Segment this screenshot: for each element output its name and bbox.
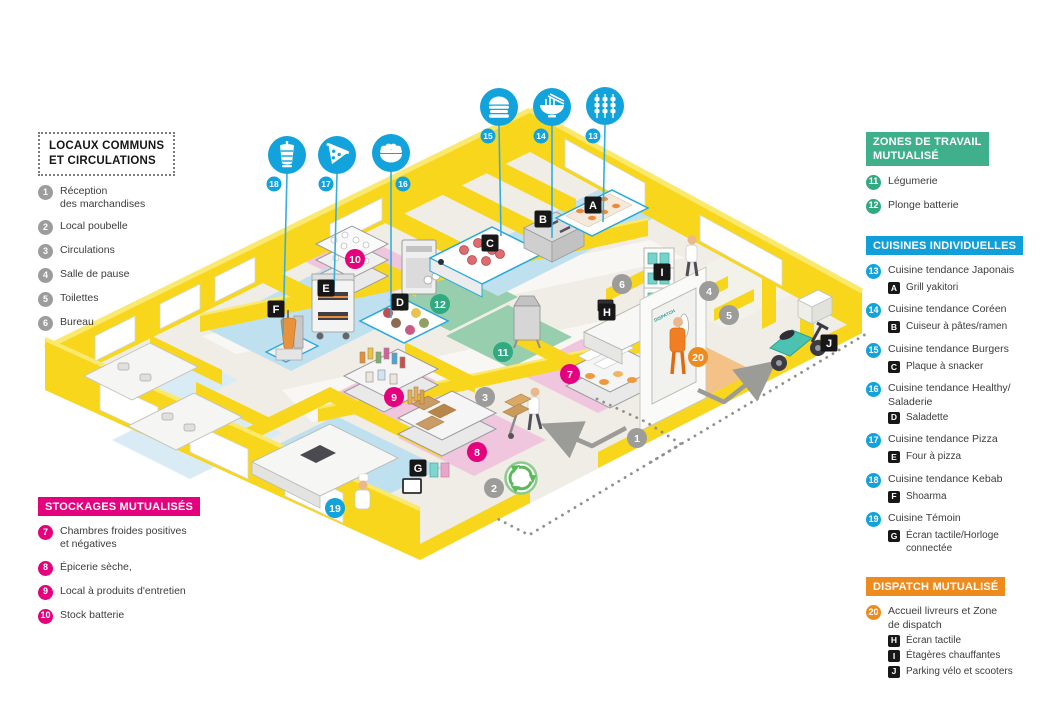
item-label: Chambres froides positives et négatives (60, 525, 187, 551)
item-label: Cuisine tendance Pizza (888, 433, 998, 446)
legend-item-entretien: 9 Local à produits d'entretien (38, 585, 223, 600)
icon-number: 14 (536, 131, 546, 141)
item-label: Local poubelle (60, 220, 128, 233)
legend-right-column: ZONES DE TRAVAIL MUTUALISÉ 11 Légumerie … (866, 132, 1040, 678)
badge-J: J (821, 335, 838, 352)
badge-2: 2 (484, 478, 504, 498)
legend-sub-ecran-horloge: G Écran tactile/Horloge connectée (888, 530, 1040, 555)
legend-sub-saladette: D Saladette (888, 412, 1040, 425)
item-number-badge: 15 (866, 343, 881, 358)
badge-C: C (482, 235, 499, 252)
sub-label: Parking vélo et scooters (906, 666, 1013, 679)
item-label: Toilettes (60, 292, 99, 305)
svg-text:7: 7 (567, 369, 573, 381)
item-letter-badge: G (888, 530, 900, 542)
svg-text:10: 10 (349, 254, 361, 266)
item-label: Plonge batterie (888, 199, 959, 212)
legend-item-epicerie: 8 Épicerie sèche, (38, 561, 223, 576)
legend-item-chambres-froides: 7 Chambres froides positives et négative… (38, 525, 223, 551)
sub-label: Étagères chauffantes (906, 650, 1000, 663)
badge-12: 12 (430, 294, 450, 314)
item-letter-badge: A (888, 282, 900, 294)
recycle-icon (506, 463, 538, 494)
item-number-badge: 6 (38, 316, 53, 331)
item-letter-badge: H (888, 635, 900, 647)
svg-text:19: 19 (329, 503, 341, 515)
legend-item-poubelle: 2 Local poubelle (38, 220, 216, 235)
legend-item-healthy: 16 Cuisine tendance Healthy/ Saladerie (866, 382, 1040, 408)
item-label: Local à produits d'entretien (60, 585, 186, 598)
item-label: Légumerie (888, 175, 938, 188)
item-number-badge: 12 (866, 199, 881, 214)
item-label: Bureau (60, 316, 94, 329)
icon-number: 17 (321, 179, 331, 189)
legend-item-burgers: 15 Cuisine tendance Burgers (866, 343, 1040, 358)
item-letter-badge: C (888, 361, 900, 373)
icon-number: 16 (398, 179, 408, 189)
item-number-badge: 13 (866, 264, 881, 279)
sub-label: Écran tactile (906, 635, 961, 648)
item-number-badge: 7 (38, 525, 53, 540)
sub-label: Cuiseur à pâtes/ramen (906, 321, 1007, 334)
legend-shared-title: ZONES DE TRAVAIL MUTUALISÉ (866, 132, 989, 166)
legend-sub-four: E Four à pizza (888, 451, 1040, 464)
item-label: Cuisine tendance Coréen (888, 303, 1007, 316)
badge-5: 5 (719, 305, 739, 325)
badge-10: 10 (345, 249, 365, 269)
item-label: Cuisine tendance Japonais (888, 264, 1014, 277)
legend-item-circulations: 3 Circulations (38, 244, 216, 259)
sub-label: Four à pizza (906, 451, 961, 464)
legend-kitchens-title: CUISINES INDIVIDUELLES (866, 236, 1023, 255)
legend-item-plonge: 12 Plonge batterie (866, 199, 1040, 214)
svg-text:5: 5 (726, 310, 732, 322)
svg-text:8: 8 (474, 447, 480, 459)
svg-text:H: H (603, 307, 611, 319)
badge-20: 20 (688, 347, 708, 367)
badge-1: 1 (627, 428, 647, 448)
sub-label: Écran tactile/Horloge connectée (906, 530, 999, 555)
svg-text:B: B (539, 214, 547, 226)
legend-item-legumerie: 11 Légumerie (866, 175, 1040, 190)
item-number-badge: 5 (38, 292, 53, 307)
legend-item-reception: 1 Réception des marchandises (38, 185, 216, 211)
badge-3: 3 (475, 387, 495, 407)
badge-G: G (410, 460, 427, 477)
legend-item-toilettes: 5 Toilettes (38, 292, 216, 307)
svg-text:J: J (826, 338, 832, 350)
svg-text:11: 11 (497, 347, 508, 359)
legend-item-pause: 4 Salle de pause (38, 268, 216, 283)
svg-text:6: 6 (619, 279, 625, 291)
legend-item-pizza: 17 Cuisine tendance Pizza (866, 433, 1040, 448)
badge-E: E (318, 280, 335, 297)
item-label: Salle de pause (60, 268, 129, 281)
svg-text:20: 20 (692, 352, 704, 364)
badge-19: 19 (325, 498, 345, 518)
badge-8: 8 (467, 442, 487, 462)
svg-text:A: A (589, 200, 597, 212)
legend-locaux-communs: LOCAUX COMMUNS ET CIRCULATIONS 1 Récepti… (38, 132, 216, 331)
item-label: Circulations (60, 244, 115, 257)
legend-item-coreen: 14 Cuisine tendance Coréen (866, 303, 1040, 318)
item-number-badge: 16 (866, 382, 881, 397)
svg-text:1: 1 (634, 433, 640, 445)
legend-item-kebab: 18 Cuisine tendance Kebab (866, 473, 1040, 488)
legend-item-bureau: 6 Bureau (38, 316, 216, 331)
icon-number: 18 (269, 179, 279, 189)
legend-item-accueil-livreurs: 20 Accueil livreurs et Zone de dispatch (866, 605, 1040, 631)
badge-6: 6 (612, 274, 632, 294)
svg-text:I: I (660, 267, 663, 279)
svg-text:9: 9 (391, 392, 397, 404)
item-letter-badge: J (888, 666, 900, 678)
item-number-badge: 4 (38, 268, 53, 283)
badge-9: 9 (384, 387, 404, 407)
item-letter-badge: F (888, 491, 900, 503)
badge-F: F (268, 301, 285, 318)
legend-dispatch-title: DISPATCH MUTUALISÉ (866, 577, 1005, 596)
sub-label: Shoarma (906, 491, 947, 504)
svg-text:G: G (414, 463, 423, 475)
svg-text:E: E (322, 283, 329, 295)
svg-text:2: 2 (491, 483, 497, 495)
legend-sub-grill-yakitori: A Grill yakitori (888, 282, 1040, 295)
legend-item-temoin: 19 Cuisine Témoin (866, 512, 1040, 527)
item-label: Cuisine Témoin (888, 512, 961, 525)
icon-number: 15 (483, 131, 493, 141)
item-label: Cuisine tendance Healthy/ Saladerie (888, 382, 1011, 408)
svg-text:4: 4 (706, 286, 712, 298)
badge-7: 7 (560, 364, 580, 384)
legumerie-machine (514, 296, 540, 348)
svg-text:12: 12 (434, 299, 446, 311)
item-number-badge: 1 (38, 185, 53, 200)
sub-label: Plaque à snacker (906, 361, 983, 374)
legend-storage-title: STOCKAGES MUTUALISÉS (38, 497, 200, 516)
item-number-badge: 8 (38, 561, 53, 576)
badge-11: 11 (493, 342, 513, 362)
svg-text:F: F (273, 304, 280, 316)
legend-item-japonais: 13 Cuisine tendance Japonais (866, 264, 1040, 279)
legend-item-stock-batterie: 10 Stock batterie (38, 609, 223, 624)
sub-label: Grill yakitori (906, 282, 958, 295)
item-letter-badge: I (888, 650, 900, 662)
item-label: Épicerie sèche, (60, 561, 132, 574)
item-letter-badge: E (888, 451, 900, 463)
svg-text:3: 3 (482, 392, 488, 404)
item-label: Cuisine tendance Kebab (888, 473, 1002, 486)
item-number-badge: 18 (866, 473, 881, 488)
legend-sub-parking: J Parking vélo et scooters (888, 666, 1040, 679)
svg-text:D: D (396, 297, 404, 309)
sub-label: Saladette (906, 412, 948, 425)
legend-stockages: STOCKAGES MUTUALISÉS 7 Chambres froides … (38, 497, 223, 624)
item-number-badge: 17 (866, 433, 881, 448)
item-number-badge: 3 (38, 244, 53, 259)
item-letter-badge: D (888, 412, 900, 424)
item-label: Accueil livreurs et Zone de dispatch (888, 605, 997, 631)
item-number-badge: 2 (38, 220, 53, 235)
item-number-badge: 19 (866, 512, 881, 527)
legend-common-title: LOCAUX COMMUNS ET CIRCULATIONS (38, 132, 175, 176)
item-letter-badge: B (888, 321, 900, 333)
legend-sub-plaque: C Plaque à snacker (888, 361, 1040, 374)
legend-sub-ecran-tactile: H Écran tactile (888, 635, 1040, 648)
item-number-badge: 14 (866, 303, 881, 318)
item-number-badge: 9 (38, 585, 53, 600)
svg-text:C: C (486, 238, 494, 250)
legend-sub-cuiseur: B Cuiseur à pâtes/ramen (888, 321, 1040, 334)
legend-sub-etageres: I Étagères chauffantes (888, 650, 1040, 663)
badge-D: D (392, 294, 409, 311)
icon-number: 13 (588, 131, 598, 141)
item-label: Stock batterie (60, 609, 124, 622)
item-number-badge: 20 (866, 605, 881, 620)
item-number-badge: 11 (866, 175, 881, 190)
badge-B: B (535, 211, 552, 228)
badge-I: I (654, 264, 671, 281)
badge-4: 4 (699, 281, 719, 301)
badge-H: H (599, 304, 616, 321)
legend-sub-shoarma: F Shoarma (888, 491, 1040, 504)
item-label: Réception des marchandises (60, 185, 145, 211)
badge-A: A (585, 197, 602, 214)
item-label: Cuisine tendance Burgers (888, 343, 1009, 356)
item-number-badge: 10 (38, 609, 53, 624)
